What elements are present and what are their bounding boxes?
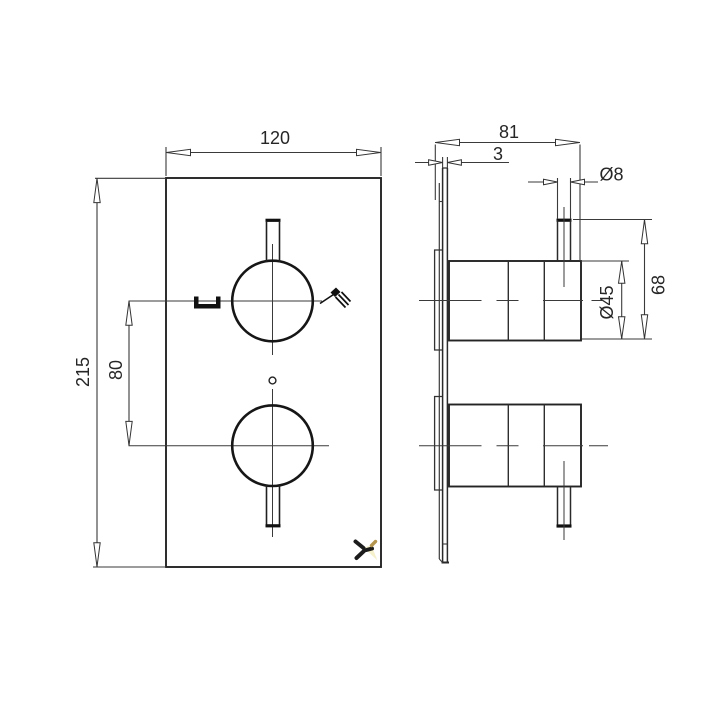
arrow-down (126, 421, 132, 445)
arrow-up (126, 301, 132, 325)
arrow-down (641, 315, 647, 339)
logo-gold-stroke (372, 542, 376, 546)
front-view (129, 178, 382, 567)
faceplate-outline (166, 178, 381, 567)
arrow-up (94, 179, 100, 203)
logo-stroke-3 (367, 549, 373, 551)
setscrew-icon (269, 377, 276, 384)
dim-label-81: 81 (499, 122, 519, 142)
upper-valve-body (449, 207, 581, 341)
arrow-down (94, 543, 100, 567)
spray-arm (320, 294, 335, 304)
spray-line-1 (336, 297, 346, 308)
dim-label-120: 120 (260, 128, 290, 148)
arrow-right (556, 139, 580, 145)
dim-label-d45: Ø45 (597, 285, 617, 319)
lower-valve-body (449, 405, 581, 541)
logo-stroke-1 (356, 542, 364, 549)
arrow-left (436, 139, 460, 145)
spray-line-2 (339, 295, 349, 306)
dim-label-215: 215 (73, 357, 93, 387)
lower-back-bracket (435, 397, 442, 491)
arrow-right (544, 179, 558, 185)
dimension-plate-3: 3 (415, 144, 509, 168)
arrow-down (619, 317, 625, 339)
shower-spray-icon (320, 288, 351, 308)
dimension-width-120: 120 (166, 128, 381, 176)
arrow-left (167, 149, 191, 155)
brand-logo-icon (356, 542, 378, 561)
arrow-up (641, 220, 647, 244)
dim-label-68: 68 (649, 275, 669, 295)
bath-spout-icon (194, 297, 221, 309)
logo-stroke-2 (357, 551, 365, 559)
dim-label-3: 3 (493, 144, 503, 164)
dim-label-80: 80 (106, 360, 126, 380)
technical-drawing-canvas: 120 215 80 (0, 0, 719, 719)
arrow-right (357, 149, 381, 155)
dim-label-d8: Ø8 (599, 165, 623, 185)
wall-plate-profile (435, 168, 449, 563)
arrow-up (619, 261, 625, 283)
arrow-left (447, 160, 461, 166)
dimension-spindle-d8: Ø8 (528, 165, 624, 220)
arrow-left (571, 179, 585, 185)
dimension-spacing-80: 80 (106, 301, 132, 446)
dimension-body-d45: Ø45 (581, 261, 629, 339)
